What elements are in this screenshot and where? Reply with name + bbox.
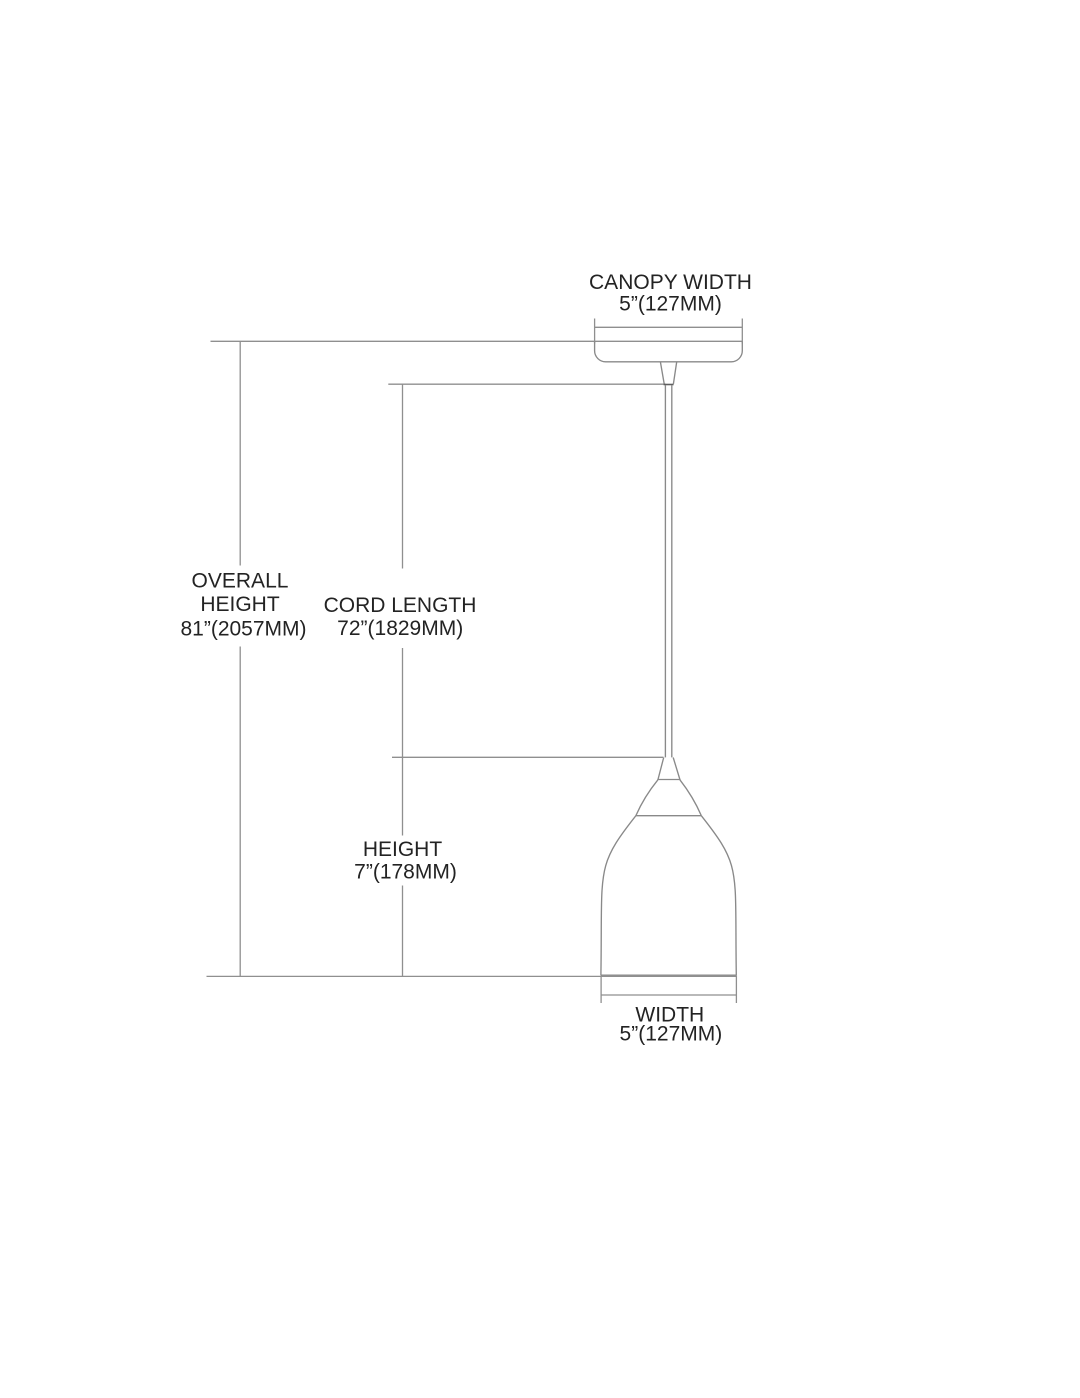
svg-text:81”(2057MM): 81”(2057MM) xyxy=(180,618,306,641)
svg-text:OVERALL: OVERALL xyxy=(192,570,289,593)
svg-text:HEIGHT: HEIGHT xyxy=(363,838,443,861)
svg-text:CORD LENGTH: CORD LENGTH xyxy=(324,594,477,617)
svg-text:CANOPY WIDTH: CANOPY WIDTH xyxy=(589,271,752,294)
svg-text:7”(178MM): 7”(178MM) xyxy=(354,861,457,884)
svg-text:72”(1829MM): 72”(1829MM) xyxy=(337,617,463,640)
svg-text:HEIGHT: HEIGHT xyxy=(200,593,280,616)
svg-text:5”(127MM): 5”(127MM) xyxy=(620,1022,723,1045)
svg-text:5”(127MM): 5”(127MM) xyxy=(619,293,722,316)
